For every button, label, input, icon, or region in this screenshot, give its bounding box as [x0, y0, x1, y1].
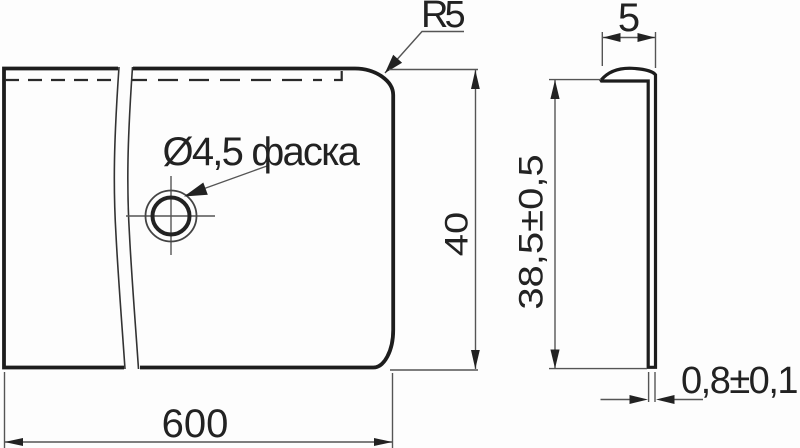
svg-text:600: 600 — [162, 402, 229, 446]
svg-text:0,8±0,1: 0,8±0,1 — [681, 360, 797, 402]
svg-text:5: 5 — [618, 0, 640, 40]
svg-text:40: 40 — [438, 212, 474, 257]
svg-text:Ø4,5 фаска: Ø4,5 фаска — [163, 130, 361, 174]
svg-text:38,5±0,5: 38,5±0,5 — [511, 154, 549, 309]
svg-text:R5: R5 — [421, 0, 464, 36]
